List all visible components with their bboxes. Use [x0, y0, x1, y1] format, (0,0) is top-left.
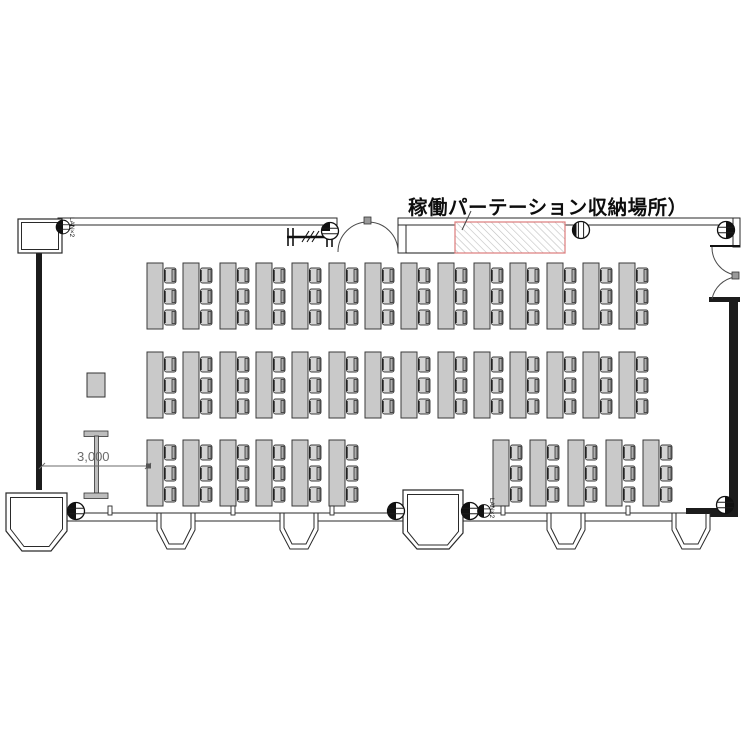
furniture-layer	[147, 263, 672, 506]
chair-icon	[527, 378, 539, 393]
wall-joint-tick	[501, 506, 505, 515]
chair-icon	[600, 357, 612, 372]
chair-icon	[382, 268, 394, 283]
column-marker-top	[573, 222, 590, 239]
table	[474, 263, 490, 329]
table	[568, 440, 584, 506]
table-group	[220, 263, 249, 329]
chair-icon	[309, 378, 321, 393]
table-group	[256, 440, 285, 506]
partition-storage-label: 稼働パーテーション収納場所）	[408, 196, 688, 219]
table	[510, 263, 526, 329]
chair-icon	[309, 445, 321, 460]
chair-icon	[382, 310, 394, 325]
chair-icon	[164, 378, 176, 393]
chair-icon	[200, 445, 212, 460]
chair-icon	[527, 399, 539, 414]
table-group	[147, 263, 176, 329]
chair-icon	[309, 289, 321, 304]
chair-icon	[491, 399, 503, 414]
chair-icon	[200, 378, 212, 393]
outlet-bottom-right	[717, 497, 734, 514]
chair-icon	[273, 268, 285, 283]
chair-icon	[636, 289, 648, 304]
chair-icon	[660, 487, 672, 502]
table	[256, 352, 272, 418]
chair-icon	[200, 487, 212, 502]
table-group	[510, 263, 539, 329]
table-group	[619, 263, 648, 329]
table-group	[292, 352, 321, 418]
table	[292, 440, 308, 506]
chair-icon	[273, 289, 285, 304]
table-group	[329, 352, 358, 418]
chair-icon	[382, 399, 394, 414]
entrance-vestibule	[403, 490, 463, 549]
top-wall-right	[398, 218, 740, 225]
chair-icon	[491, 378, 503, 393]
chair-icon	[200, 466, 212, 481]
chair-icon	[273, 399, 285, 414]
chair-icon	[527, 357, 539, 372]
chair-icon	[237, 289, 249, 304]
table-group	[643, 440, 672, 506]
table	[606, 440, 622, 506]
chair-icon	[636, 357, 648, 372]
table	[220, 440, 236, 506]
chair-icon	[273, 378, 285, 393]
table-group	[365, 263, 394, 329]
table	[147, 440, 163, 506]
chair-icon	[491, 289, 503, 304]
chair-icon	[585, 487, 597, 502]
chair-icon	[510, 445, 522, 460]
table	[474, 352, 490, 418]
table-group	[583, 352, 612, 418]
top-wall-left	[58, 218, 337, 225]
wall-joint-tick	[108, 506, 112, 515]
corner-unit-bottom-left	[6, 493, 67, 551]
outlet-bottom-left	[68, 503, 85, 520]
chair-icon	[491, 357, 503, 372]
table-group	[147, 440, 176, 506]
table	[583, 263, 599, 329]
table	[547, 263, 563, 329]
chair-icon	[237, 445, 249, 460]
chair-icon	[547, 466, 559, 481]
chair-icon	[309, 268, 321, 283]
table-group	[292, 440, 321, 506]
double-door-right	[709, 246, 740, 302]
chair-icon	[636, 378, 648, 393]
floor-plan: 稼働パーテーション収納場所） 3,000	[0, 0, 750, 750]
chair-icon	[346, 378, 358, 393]
chair-icon	[510, 466, 522, 481]
table-group	[292, 263, 321, 329]
table	[547, 352, 563, 418]
table-group	[183, 263, 212, 329]
chair-icon	[200, 268, 212, 283]
table-group	[438, 352, 467, 418]
chair-icon	[636, 310, 648, 325]
chair-icon	[418, 357, 430, 372]
table-group	[474, 352, 503, 418]
chair-icon	[382, 378, 394, 393]
chair-icon	[237, 357, 249, 372]
table-group	[568, 440, 597, 506]
chair-icon	[660, 466, 672, 481]
table	[183, 440, 199, 506]
table-group	[438, 263, 467, 329]
table-group	[183, 440, 212, 506]
chair-icon	[418, 310, 430, 325]
table	[401, 352, 417, 418]
table-group	[510, 352, 539, 418]
table	[619, 352, 635, 418]
chair-icon	[455, 357, 467, 372]
chair-icon	[564, 310, 576, 325]
outlet-entrance-right	[462, 503, 479, 520]
dimension-label: 3,000	[77, 449, 110, 464]
chair-icon	[491, 268, 503, 283]
chair-icon	[491, 310, 503, 325]
chair-icon	[418, 399, 430, 414]
chair-icon	[309, 310, 321, 325]
lan-label-bottom: LAN×2	[488, 498, 495, 518]
chair-icon	[346, 268, 358, 283]
chair-icon	[309, 466, 321, 481]
chair-icon	[418, 268, 430, 283]
chair-icon	[585, 445, 597, 460]
table	[292, 263, 308, 329]
table-group	[547, 352, 576, 418]
dimension-3000: 3,000	[39, 449, 151, 469]
chair-icon	[636, 268, 648, 283]
table-group	[365, 352, 394, 418]
chair-icon	[564, 289, 576, 304]
chair-icon	[237, 487, 249, 502]
chair-icon	[564, 378, 576, 393]
chair-icon	[455, 310, 467, 325]
wall-joint-tick	[231, 506, 235, 515]
chair-icon	[382, 289, 394, 304]
table-group	[401, 263, 430, 329]
chair-icon	[237, 399, 249, 414]
table	[220, 352, 236, 418]
chair-icon	[585, 466, 597, 481]
wall-bay	[672, 513, 710, 549]
table-group	[493, 440, 522, 506]
chair-icon	[200, 310, 212, 325]
outlet-entrance-left	[388, 503, 405, 520]
table	[493, 440, 509, 506]
chair-icon	[273, 487, 285, 502]
partition-storage-area	[455, 222, 565, 253]
table	[183, 263, 199, 329]
chair-icon	[164, 445, 176, 460]
chair-icon	[273, 445, 285, 460]
left-wall	[36, 253, 42, 490]
chair-icon	[564, 268, 576, 283]
chair-icon	[346, 289, 358, 304]
chair-icon	[600, 378, 612, 393]
table	[256, 263, 272, 329]
chair-icon	[547, 487, 559, 502]
table	[329, 440, 345, 506]
chair-icon	[623, 487, 635, 502]
table	[183, 352, 199, 418]
wall-joint-tick	[330, 506, 334, 515]
chair-icon	[382, 357, 394, 372]
wall-bay	[157, 513, 195, 549]
chair-icon	[346, 399, 358, 414]
table-group	[220, 440, 249, 506]
chair-icon	[309, 399, 321, 414]
table-group	[147, 352, 176, 418]
cabinet-top-left	[18, 219, 62, 253]
table-group	[401, 352, 430, 418]
chair-icon	[564, 399, 576, 414]
chair-icon	[164, 268, 176, 283]
lan-label-top-left: LAN×2	[68, 217, 75, 237]
chair-icon	[600, 310, 612, 325]
table	[438, 352, 454, 418]
table-group	[606, 440, 635, 506]
chair-icon	[564, 357, 576, 372]
chair-icon	[273, 357, 285, 372]
table	[329, 263, 345, 329]
table	[256, 440, 272, 506]
column-i-beam	[84, 431, 108, 499]
chair-icon	[164, 357, 176, 372]
chair-icon	[547, 445, 559, 460]
table	[510, 352, 526, 418]
wall-bay	[280, 513, 318, 549]
chair-icon	[237, 310, 249, 325]
table	[147, 263, 163, 329]
chair-icon	[309, 487, 321, 502]
table-group	[474, 263, 503, 329]
table	[583, 352, 599, 418]
chair-icon	[455, 378, 467, 393]
chair-icon	[527, 289, 539, 304]
right-wall	[729, 301, 738, 517]
chair-icon	[346, 487, 358, 502]
chair-icon	[237, 466, 249, 481]
table	[329, 352, 345, 418]
chair-icon	[200, 399, 212, 414]
chair-icon	[346, 466, 358, 481]
chair-icon	[510, 487, 522, 502]
chair-icon	[346, 445, 358, 460]
table-group	[183, 352, 212, 418]
chair-icon	[418, 378, 430, 393]
outlet-door-track	[322, 223, 339, 240]
chair-icon	[309, 357, 321, 372]
table	[530, 440, 546, 506]
wall-bay	[547, 513, 585, 549]
table	[401, 263, 417, 329]
chair-icon	[346, 310, 358, 325]
table	[365, 352, 381, 418]
chair-icon	[164, 399, 176, 414]
chair-icon	[164, 487, 176, 502]
chair-icon	[527, 268, 539, 283]
chair-icon	[418, 289, 430, 304]
chair-icon	[346, 357, 358, 372]
chair-icon	[455, 268, 467, 283]
chair-icon	[600, 399, 612, 414]
table	[147, 352, 163, 418]
chair-icon	[600, 268, 612, 283]
chair-icon	[237, 268, 249, 283]
chair-icon	[600, 289, 612, 304]
table	[220, 263, 236, 329]
table-group	[547, 263, 576, 329]
table	[619, 263, 635, 329]
table-group	[619, 352, 648, 418]
podium	[87, 373, 105, 397]
chair-icon	[164, 310, 176, 325]
table-group	[256, 352, 285, 418]
chair-icon	[273, 466, 285, 481]
table-group	[329, 263, 358, 329]
lan-outlet-top-left	[56, 220, 70, 234]
table-group	[329, 440, 358, 506]
chair-icon	[623, 466, 635, 481]
chair-icon	[527, 310, 539, 325]
chair-icon	[455, 289, 467, 304]
floor-plan-page: 稼働パーテーション収納場所） 3,000	[0, 0, 750, 750]
table	[438, 263, 454, 329]
table	[292, 352, 308, 418]
chair-icon	[660, 445, 672, 460]
outlet-top-right	[718, 222, 735, 239]
double-door-top	[338, 217, 398, 252]
chair-icon	[455, 399, 467, 414]
chair-icon	[273, 310, 285, 325]
chair-icon	[200, 289, 212, 304]
chair-icon	[623, 445, 635, 460]
table	[365, 263, 381, 329]
table-group	[256, 263, 285, 329]
chair-icon	[164, 466, 176, 481]
table-group	[220, 352, 249, 418]
chair-icon	[237, 378, 249, 393]
niche-pier	[398, 225, 406, 253]
chair-icon	[164, 289, 176, 304]
wall-joint-tick	[626, 506, 630, 515]
chair-icon	[636, 399, 648, 414]
table-group	[583, 263, 612, 329]
chair-icon	[200, 357, 212, 372]
table-group	[530, 440, 559, 506]
table	[643, 440, 659, 506]
